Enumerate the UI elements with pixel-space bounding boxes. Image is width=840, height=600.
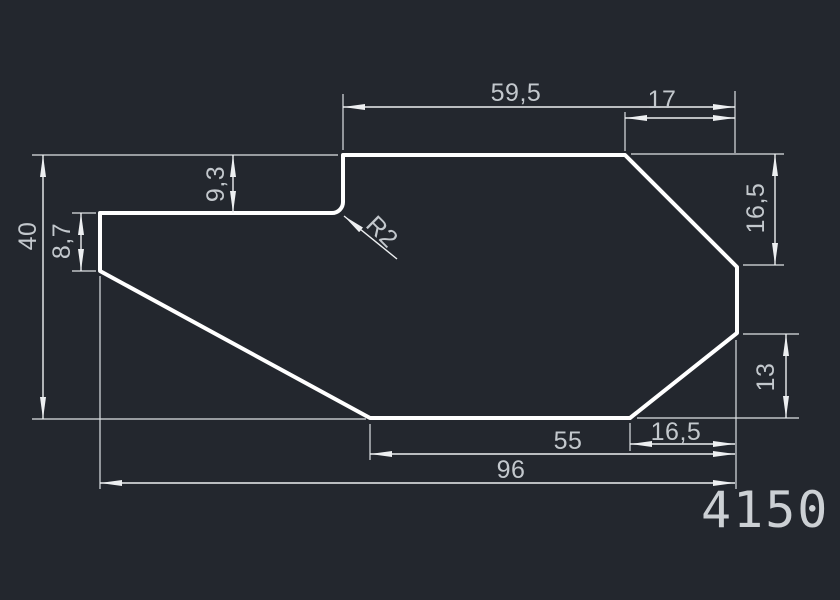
dimension-left-flange-height: 8,7	[48, 213, 96, 271]
dimension-label: 8,7	[48, 223, 76, 259]
dimension-overall-height: 40	[14, 155, 366, 419]
dimension-label: 40	[14, 222, 42, 251]
dimension-label: 16,5	[742, 183, 770, 234]
radius-callout: R2	[344, 210, 404, 259]
dimension-bottom-overall-width: 96	[100, 276, 735, 489]
dimension-top-right-width: 17	[625, 86, 735, 151]
dimension-label: 16,5	[651, 418, 702, 446]
cad-drawing: 59,5 17 40 9,3 8,7 R	[0, 0, 840, 600]
dimension-label: 9,3	[202, 166, 230, 202]
part-number: 4150	[701, 481, 829, 539]
dimension-label: 17	[648, 86, 677, 114]
dimension-step-depth: 9,3	[202, 155, 233, 213]
dimension-label: 96	[497, 456, 526, 484]
part-outline	[100, 155, 737, 418]
dimension-label: 13	[752, 363, 780, 392]
dimension-label: 59,5	[491, 79, 542, 107]
dimension-bottom-right-width: 16,5	[630, 340, 736, 489]
dimension-label: 55	[554, 427, 583, 455]
dimension-right-upper-height: 16,5	[631, 154, 784, 265]
radius-label: R2	[360, 210, 403, 253]
drawing-canvas[interactable]: 59,5 17 40 9,3 8,7 R	[0, 0, 840, 600]
